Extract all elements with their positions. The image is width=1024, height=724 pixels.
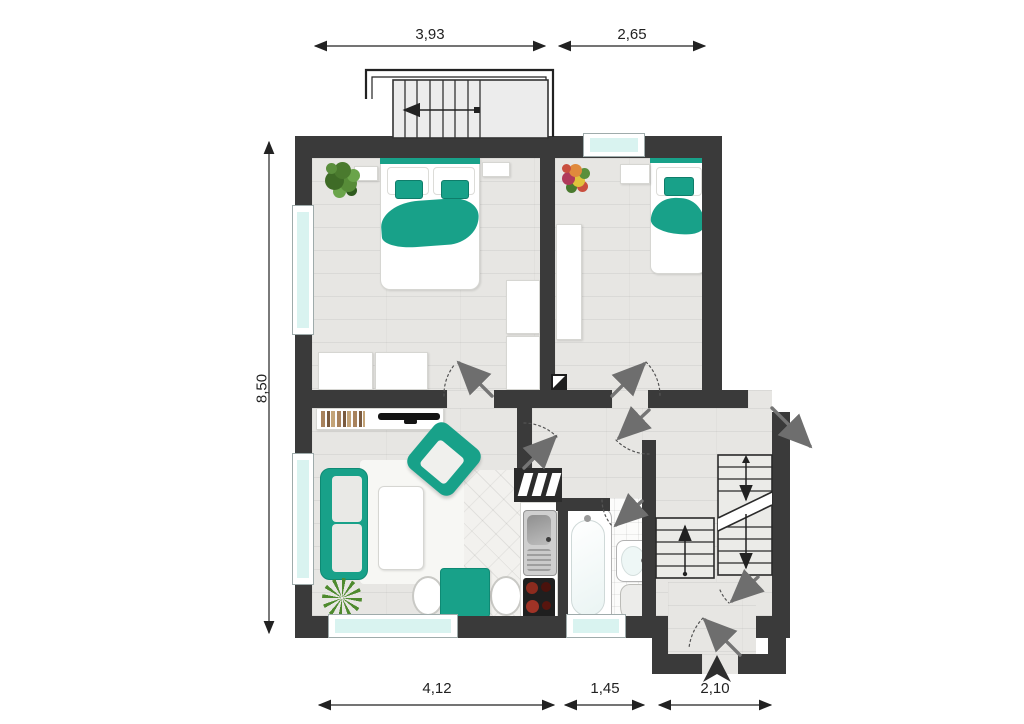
- kitchen-sink: [523, 510, 557, 576]
- books-icon: [321, 411, 365, 427]
- wall-bedrooms-bottom-b: [494, 390, 612, 408]
- nightstand: [354, 166, 378, 181]
- wall-hall-top: [648, 390, 748, 408]
- dresser: [318, 352, 373, 390]
- dimension-label-bottom-3: 2,10: [670, 680, 760, 697]
- cabinet-mark-icon: [532, 473, 548, 496]
- wall-bedroom-divider: [540, 136, 555, 408]
- window-glass: [335, 619, 451, 633]
- wall-bath-stair: [642, 440, 656, 618]
- sofa-cushion: [332, 476, 362, 522]
- wall-vestibule-bottom-right: [738, 654, 786, 674]
- vestibule-floor: [668, 582, 756, 656]
- coffee-table: [378, 486, 424, 570]
- dining-table: [440, 568, 490, 618]
- window-glass: [297, 212, 309, 328]
- dimension-label-top-2: 2,65: [587, 26, 677, 43]
- dimension-label-bottom-2: 1,45: [560, 680, 650, 697]
- window-glass: [573, 619, 619, 633]
- burner-icon: [526, 582, 538, 594]
- cushion: [664, 177, 694, 196]
- wardrobe: [506, 280, 540, 334]
- dimension-label-bottom-1: 4,12: [392, 680, 482, 697]
- wall-vestibule-bottom-left: [652, 654, 702, 674]
- door-gap-floor: [447, 390, 494, 408]
- wall-bedrooms-bottom-a: [312, 390, 447, 408]
- entry-threshold-floor: [702, 654, 738, 674]
- burner-icon: [541, 582, 551, 592]
- wall-bath-top: [556, 498, 610, 511]
- ventilation-shaft-icon: [551, 374, 567, 390]
- cabinet-mark-icon: [546, 473, 562, 496]
- exterior-stairs: [366, 70, 553, 138]
- shelf: [482, 162, 510, 177]
- kitchen-wall-cabinets: [514, 468, 562, 502]
- dresser: [375, 352, 428, 390]
- window: [292, 453, 314, 585]
- wall-right-lower: [772, 412, 790, 638]
- wall-right-upper: [702, 136, 722, 408]
- burner-icon: [526, 600, 539, 613]
- cushion: [395, 180, 423, 199]
- nightstand: [620, 164, 650, 184]
- drainboard: [527, 549, 551, 571]
- tv-stand-icon: [404, 419, 417, 424]
- burner-icon: [542, 601, 551, 610]
- cabinet-mark-icon: [518, 473, 534, 496]
- window: [566, 614, 626, 638]
- bathtub: [564, 508, 612, 624]
- armchair-seat: [419, 439, 465, 485]
- wall-living-corridor-stub: [517, 408, 532, 470]
- window-glass: [590, 138, 638, 152]
- dining-chair: [490, 576, 522, 616]
- sofa-cushion: [332, 524, 362, 572]
- window: [292, 205, 314, 335]
- door-gap-floor: [612, 390, 648, 408]
- wall-top: [295, 136, 722, 158]
- stove: [523, 578, 555, 620]
- window: [328, 614, 458, 638]
- wall-kitchen-bath: [558, 500, 568, 618]
- wardrobe: [506, 336, 540, 390]
- window-glass: [297, 460, 309, 578]
- floor-plan: 3,93 2,65 8,50 4,12 1,45 2,10: [0, 0, 1024, 724]
- window: [583, 133, 645, 157]
- faucet-icon: [584, 515, 591, 522]
- plant-icon: [326, 163, 337, 174]
- faucet-icon: [546, 537, 551, 542]
- door-gap-floor: [748, 390, 772, 408]
- bathtub-basin: [571, 520, 605, 616]
- palm-plant-icon: [322, 578, 362, 618]
- dimension-label-left: 8,50: [254, 344, 271, 434]
- dimension-label-top-1: 3,93: [385, 26, 475, 43]
- flower-plant-icon: [562, 164, 571, 173]
- cushion: [441, 180, 469, 199]
- wardrobe: [556, 224, 582, 340]
